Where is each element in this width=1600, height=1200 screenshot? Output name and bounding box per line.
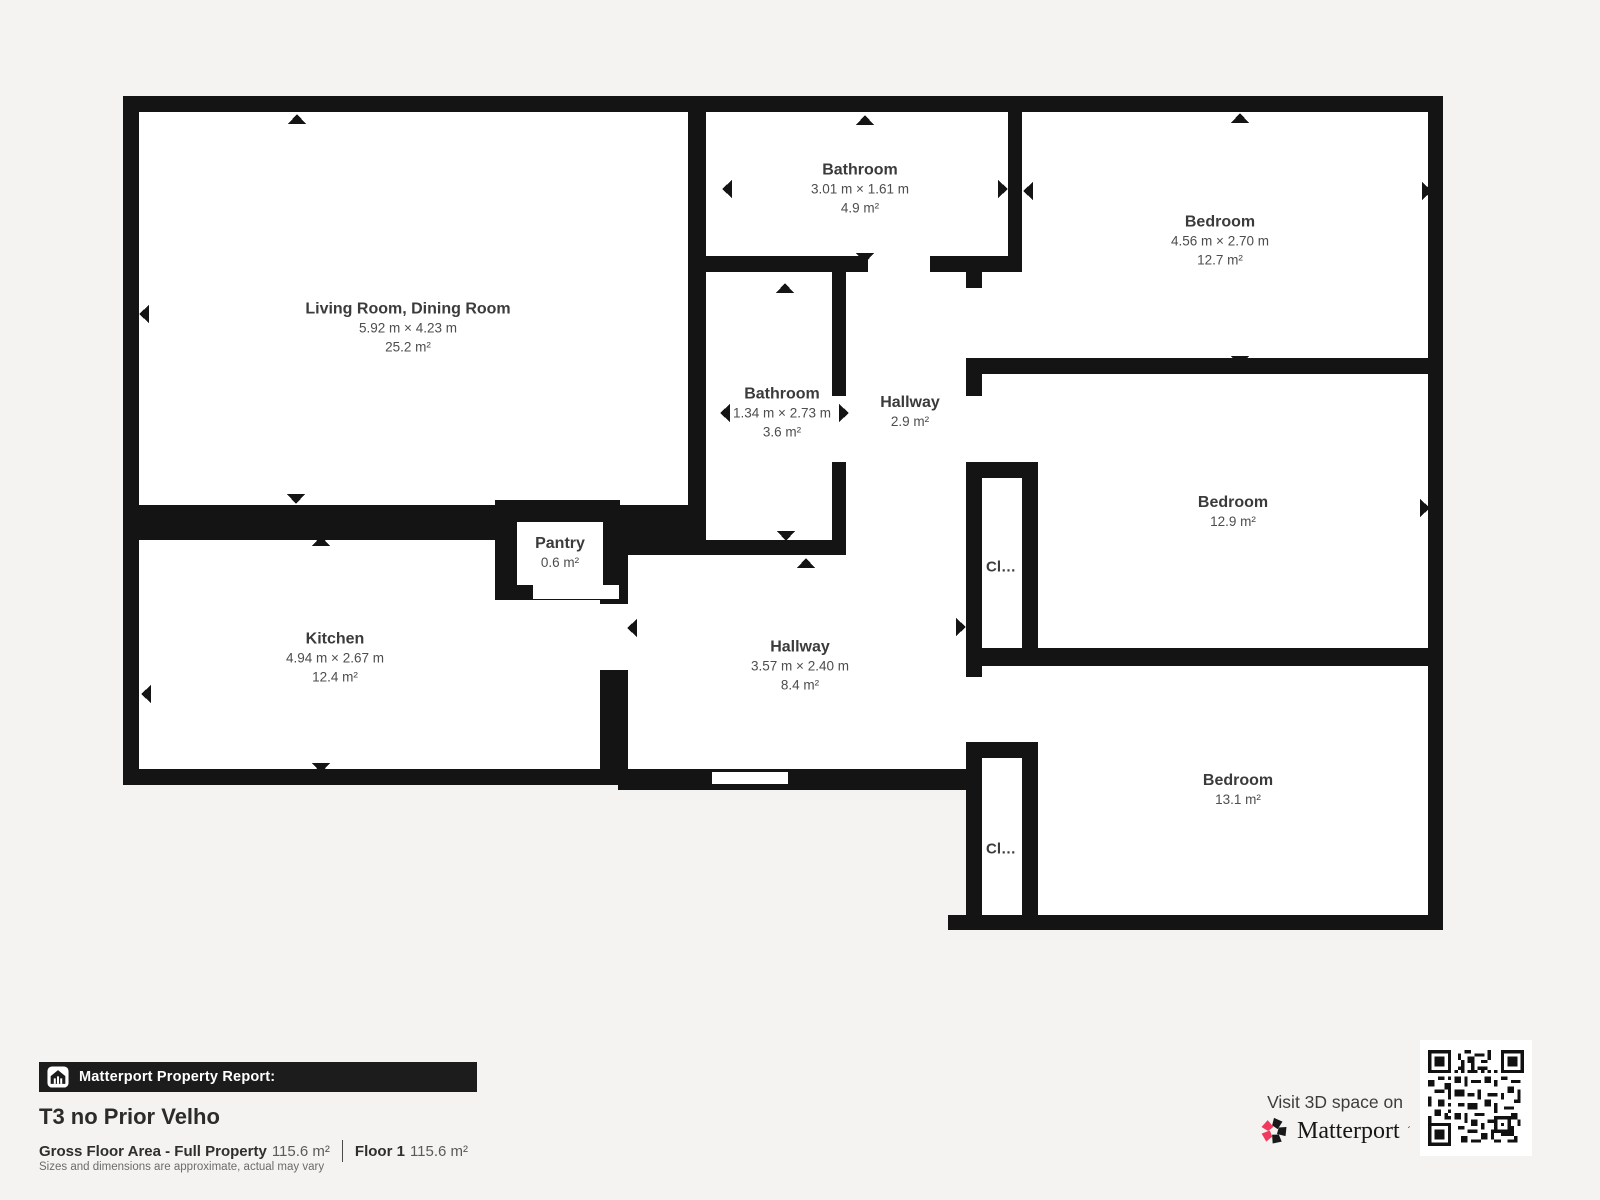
room-label-bedroom-bottom: Bedroom 13.1 m² [1203,771,1273,809]
matterport-logo: Matterport ´ [1235,1116,1435,1146]
matterport-wordmark: Matterport [1297,1118,1400,1145]
visit-3d-text: Visit 3D space on [1245,1092,1425,1113]
disclaimer-text: Sizes and dimensions are approximate, ac… [39,1161,324,1173]
house-chart-icon [47,1066,69,1088]
report-banner-label: Matterport Property Report: [79,1069,275,1085]
floor-area: Floor 1115.6 m² [355,1143,468,1160]
room-label-living-dining: Living Room, Dining Room 5.92 m × 4.23 m… [305,300,510,357]
room-label-closet-lower: Cl… [986,841,1016,858]
property-title: T3 no Prior Velho [39,1104,220,1130]
room-label-bedroom-top: Bedroom 4.56 m × 2.70 m 12.7 m² [1171,213,1269,270]
room-label-kitchen: Kitchen 4.94 m × 2.67 m 12.4 m² [286,630,384,687]
room-label-bedroom-mid: Bedroom 12.9 m² [1198,493,1268,531]
area-stats: Gross Floor Area - Full Property115.6 m²… [39,1140,468,1162]
qr-code [1420,1040,1532,1156]
room-label-hallway-lower: Hallway 3.57 m × 2.40 m 8.4 m² [751,638,849,695]
room-label-pantry: Pantry 0.6 m² [535,534,585,572]
report-banner: Matterport Property Report: [39,1062,477,1092]
matterport-pinwheel-icon [1259,1116,1289,1146]
floor-plan [0,0,1600,1200]
room-label-bathroom-top: Bathroom 3.01 m × 1.61 m 4.9 m² [811,161,909,218]
room-label-bathroom-mid: Bathroom 1.34 m × 2.73 m 3.6 m² [733,385,831,442]
gross-floor-area: Gross Floor Area - Full Property115.6 m² [39,1143,330,1160]
room-label-hallway-upper: Hallway 2.9 m² [880,393,940,431]
stats-divider [342,1140,343,1162]
floor-plan-report: Living Room, Dining Room 5.92 m × 4.23 m… [0,0,1600,1200]
room-label-closet-upper: Cl… [986,559,1016,576]
trademark-mark: ´ [1408,1126,1411,1137]
